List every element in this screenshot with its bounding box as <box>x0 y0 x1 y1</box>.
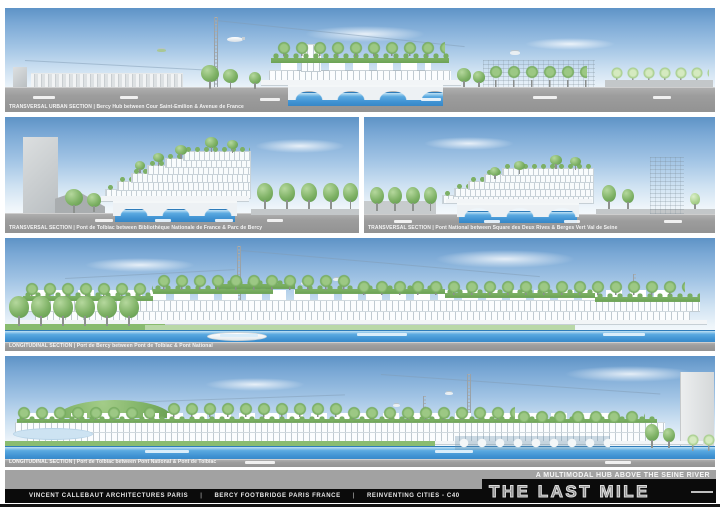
panel-caption: LONGITUDINAL SECTION | Port de Tolbiac b… <box>9 459 216 465</box>
roof-trees <box>345 406 515 420</box>
label-chip <box>653 96 671 99</box>
tree <box>323 183 339 209</box>
section-panel-transversal-urban: TRANSVERSAL URBAN SECTION | Bercy Hub be… <box>5 8 715 112</box>
roof-tree <box>205 137 218 152</box>
bridge-arches <box>288 85 443 100</box>
drone <box>510 51 520 55</box>
section-panel-port-de-bercy: LONGITUDINAL SECTION | Port de Bercy bet… <box>5 238 715 351</box>
board-subtitle: A MULTIMODAL HUB ABOVE THE SEINE RIVER <box>536 472 710 479</box>
credit-architect: VINCENT CALLEBAUT ARCHITECTURES PARIS <box>29 493 188 499</box>
tree <box>645 424 659 448</box>
building <box>650 157 684 214</box>
label-chip <box>120 96 138 99</box>
title-rule <box>691 491 713 493</box>
tree <box>602 185 616 209</box>
roof-tree <box>550 155 562 169</box>
roof-trees <box>355 280 685 295</box>
roof-tree <box>153 153 164 166</box>
bridge-arches <box>457 203 579 217</box>
roof-tree <box>175 145 187 159</box>
label-chip <box>664 220 682 223</box>
label-chip <box>421 98 441 101</box>
drone <box>157 49 166 52</box>
section-panel-port-de-tolbiac: LONGITUDINAL SECTION | Port de Tolbiac b… <box>5 356 715 467</box>
tree <box>65 189 83 213</box>
tree <box>690 193 700 209</box>
label-chip <box>215 219 233 222</box>
tree <box>9 296 29 326</box>
cloud <box>424 137 514 150</box>
roof-trees <box>15 406 155 420</box>
tree <box>388 187 402 211</box>
cloud <box>85 258 195 272</box>
roof-trees <box>155 274 355 290</box>
panel-caption: LONGITUDINAL SECTION | Port de Bercy bet… <box>9 343 213 349</box>
roof-tree <box>490 167 500 179</box>
label-chip <box>220 334 258 337</box>
label-chip <box>394 220 412 223</box>
label-chip <box>357 333 407 336</box>
quay-platform <box>251 209 359 215</box>
roof-tree <box>227 140 238 153</box>
building <box>13 67 27 88</box>
airship <box>227 37 243 42</box>
tree <box>370 187 384 211</box>
tree <box>75 296 95 326</box>
arched-openings <box>455 436 610 450</box>
cloud <box>525 38 615 50</box>
label-chip <box>564 220 580 223</box>
label-chip <box>155 219 171 222</box>
roof-tree <box>570 157 581 170</box>
label-chip <box>603 333 645 336</box>
terrace-level <box>183 151 251 161</box>
street-trees <box>609 67 709 80</box>
tree <box>119 296 139 326</box>
roof-trees <box>23 282 153 296</box>
label-chip <box>605 461 631 464</box>
tree <box>473 71 485 87</box>
label-chip <box>267 219 283 222</box>
section-panel-pont-national: TRANSVERSAL SECTION | Pont National betw… <box>364 117 715 233</box>
street-trees <box>685 434 715 451</box>
tree <box>622 189 634 209</box>
roof-trees <box>275 41 445 56</box>
cloud <box>205 378 305 391</box>
tree <box>223 69 238 89</box>
label-chip <box>260 98 280 101</box>
label-chip <box>435 450 473 453</box>
tree <box>343 183 358 209</box>
tree <box>424 187 437 211</box>
board-title: THE LAST MILE <box>489 482 650 502</box>
panel-caption: TRANSVERSAL SECTION | Pont de Tolbiac be… <box>9 225 262 231</box>
separator: | <box>353 493 355 499</box>
roof-tree <box>514 161 525 174</box>
label-chip <box>245 461 275 464</box>
title-block: THE LAST MILE <box>482 479 716 503</box>
roof-trees <box>515 410 645 423</box>
street-trees <box>487 65 587 87</box>
cloud <box>435 250 575 268</box>
tree <box>201 65 219 89</box>
roof-tree <box>135 161 145 173</box>
panel-caption: TRANSVERSAL URBAN SECTION | Bercy Hub be… <box>9 104 244 110</box>
credits-bar: VINCENT CALLEBAUT ARCHITECTURES PARIS | … <box>5 489 482 503</box>
tree <box>279 183 295 209</box>
credit-project: BERCY FOOTBRIDGE PARIS FRANCE <box>214 493 340 499</box>
tower-building <box>23 137 58 216</box>
tree <box>87 193 101 212</box>
roof-trees <box>165 402 345 417</box>
footer-rule <box>0 504 720 507</box>
presentation-board: { "board": { "title": "THE LAST MILE", "… <box>0 0 720 509</box>
cloud <box>565 366 695 382</box>
bridge-arches <box>113 201 237 216</box>
tree <box>257 183 273 209</box>
tree <box>457 68 471 87</box>
separator: | <box>200 493 202 499</box>
tree <box>97 296 117 326</box>
section-panel-pont-de-tolbiac: TRANSVERSAL SECTION | Pont de Tolbiac be… <box>5 117 359 233</box>
drone <box>445 392 453 395</box>
label-chip <box>484 220 500 223</box>
label-chip <box>533 96 557 99</box>
label-chip <box>95 219 113 222</box>
tree <box>249 72 261 89</box>
tree <box>663 428 675 448</box>
tree <box>31 296 51 326</box>
pond <box>13 428 93 440</box>
credit-competition: REINVENTING CITIES - C40 <box>367 493 460 499</box>
tree <box>406 187 420 211</box>
cloud <box>255 139 345 153</box>
tree <box>301 183 317 209</box>
label-chip <box>33 96 55 99</box>
quay-platform <box>605 80 713 87</box>
label-chip <box>145 450 189 453</box>
panel-caption: TRANSVERSAL SECTION | Pont National betw… <box>368 225 617 231</box>
tree <box>53 296 73 326</box>
